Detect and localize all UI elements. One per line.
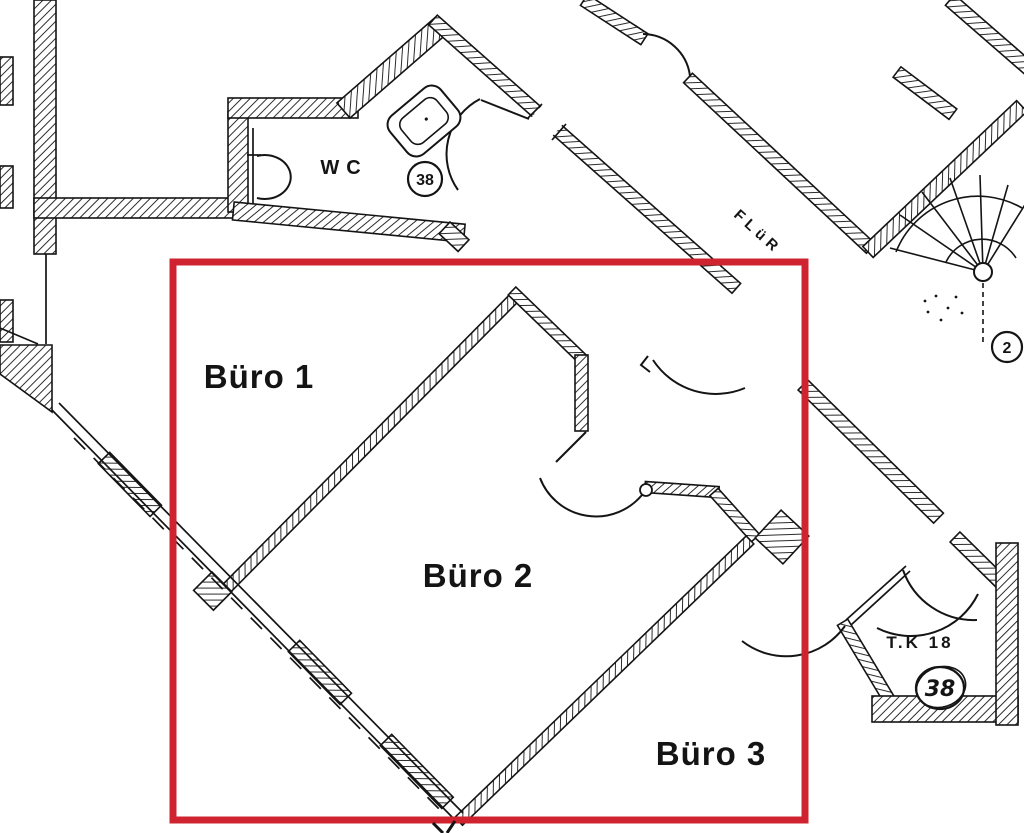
tk-door-frame: [846, 566, 910, 625]
wall-segment: [98, 452, 161, 516]
floorplan-canvas: Büro 1 Büro 2 Büro 3 WC FLüR T.K 18 38 2…: [0, 0, 1024, 833]
wall-segment: [945, 0, 1024, 77]
wall-segment: [429, 15, 741, 293]
door-arc: [643, 34, 690, 76]
wall-segment: [194, 572, 232, 610]
room-label-wc: WC: [320, 157, 367, 179]
wall-segment: [863, 101, 1024, 258]
wall-segment: [232, 202, 465, 242]
door-jamb-cap: [640, 484, 652, 496]
wall-segment: [223, 293, 519, 592]
door-arc: [653, 360, 745, 394]
wall-segment: [710, 488, 760, 541]
door-hook: [641, 356, 650, 372]
door-arc: [742, 626, 845, 656]
wc-partition: [247, 128, 261, 204]
room-label-buero1: Büro 1: [204, 358, 315, 395]
wall-segment: [798, 380, 943, 523]
corridor-label: FLüR: [730, 206, 785, 258]
stair-texture-dots: [924, 295, 964, 322]
door-number-tk: 38: [925, 677, 956, 702]
wall-segment: [575, 355, 588, 431]
wall-segment: [893, 67, 957, 120]
walls: [0, 0, 1024, 825]
wall-segment: [508, 287, 586, 363]
door-number-wc: 38: [416, 172, 434, 189]
sink-icon: [383, 81, 466, 162]
wall-segment: [996, 543, 1018, 725]
door-leaf: [556, 432, 586, 462]
wall-segment: [0, 57, 13, 105]
wall-segment: [684, 73, 876, 253]
wall-segment: [228, 112, 248, 212]
room-label-buero2: Büro 2: [423, 557, 534, 594]
stair-inner-arc: [946, 239, 1016, 262]
stair-number: 2: [1003, 340, 1012, 357]
room-label-buero3: Büro 3: [656, 735, 767, 772]
wall-segment: [645, 482, 720, 498]
shaft-pillar: [755, 510, 809, 564]
wall-segment: [34, 198, 234, 218]
room-label-tk: T.K 18: [886, 633, 953, 652]
toilet-icon: [257, 155, 291, 199]
door-arc: [877, 594, 978, 636]
wall-segment: [0, 166, 13, 208]
wall-segment: [0, 345, 52, 412]
wall-segment: [380, 734, 453, 808]
wall-segment: [0, 300, 13, 342]
wall-segment: [580, 0, 647, 45]
spiral-staircase: [890, 175, 1024, 342]
wall-segment: [288, 640, 351, 704]
door-arc: [540, 478, 642, 516]
stair-newel: [974, 263, 992, 281]
